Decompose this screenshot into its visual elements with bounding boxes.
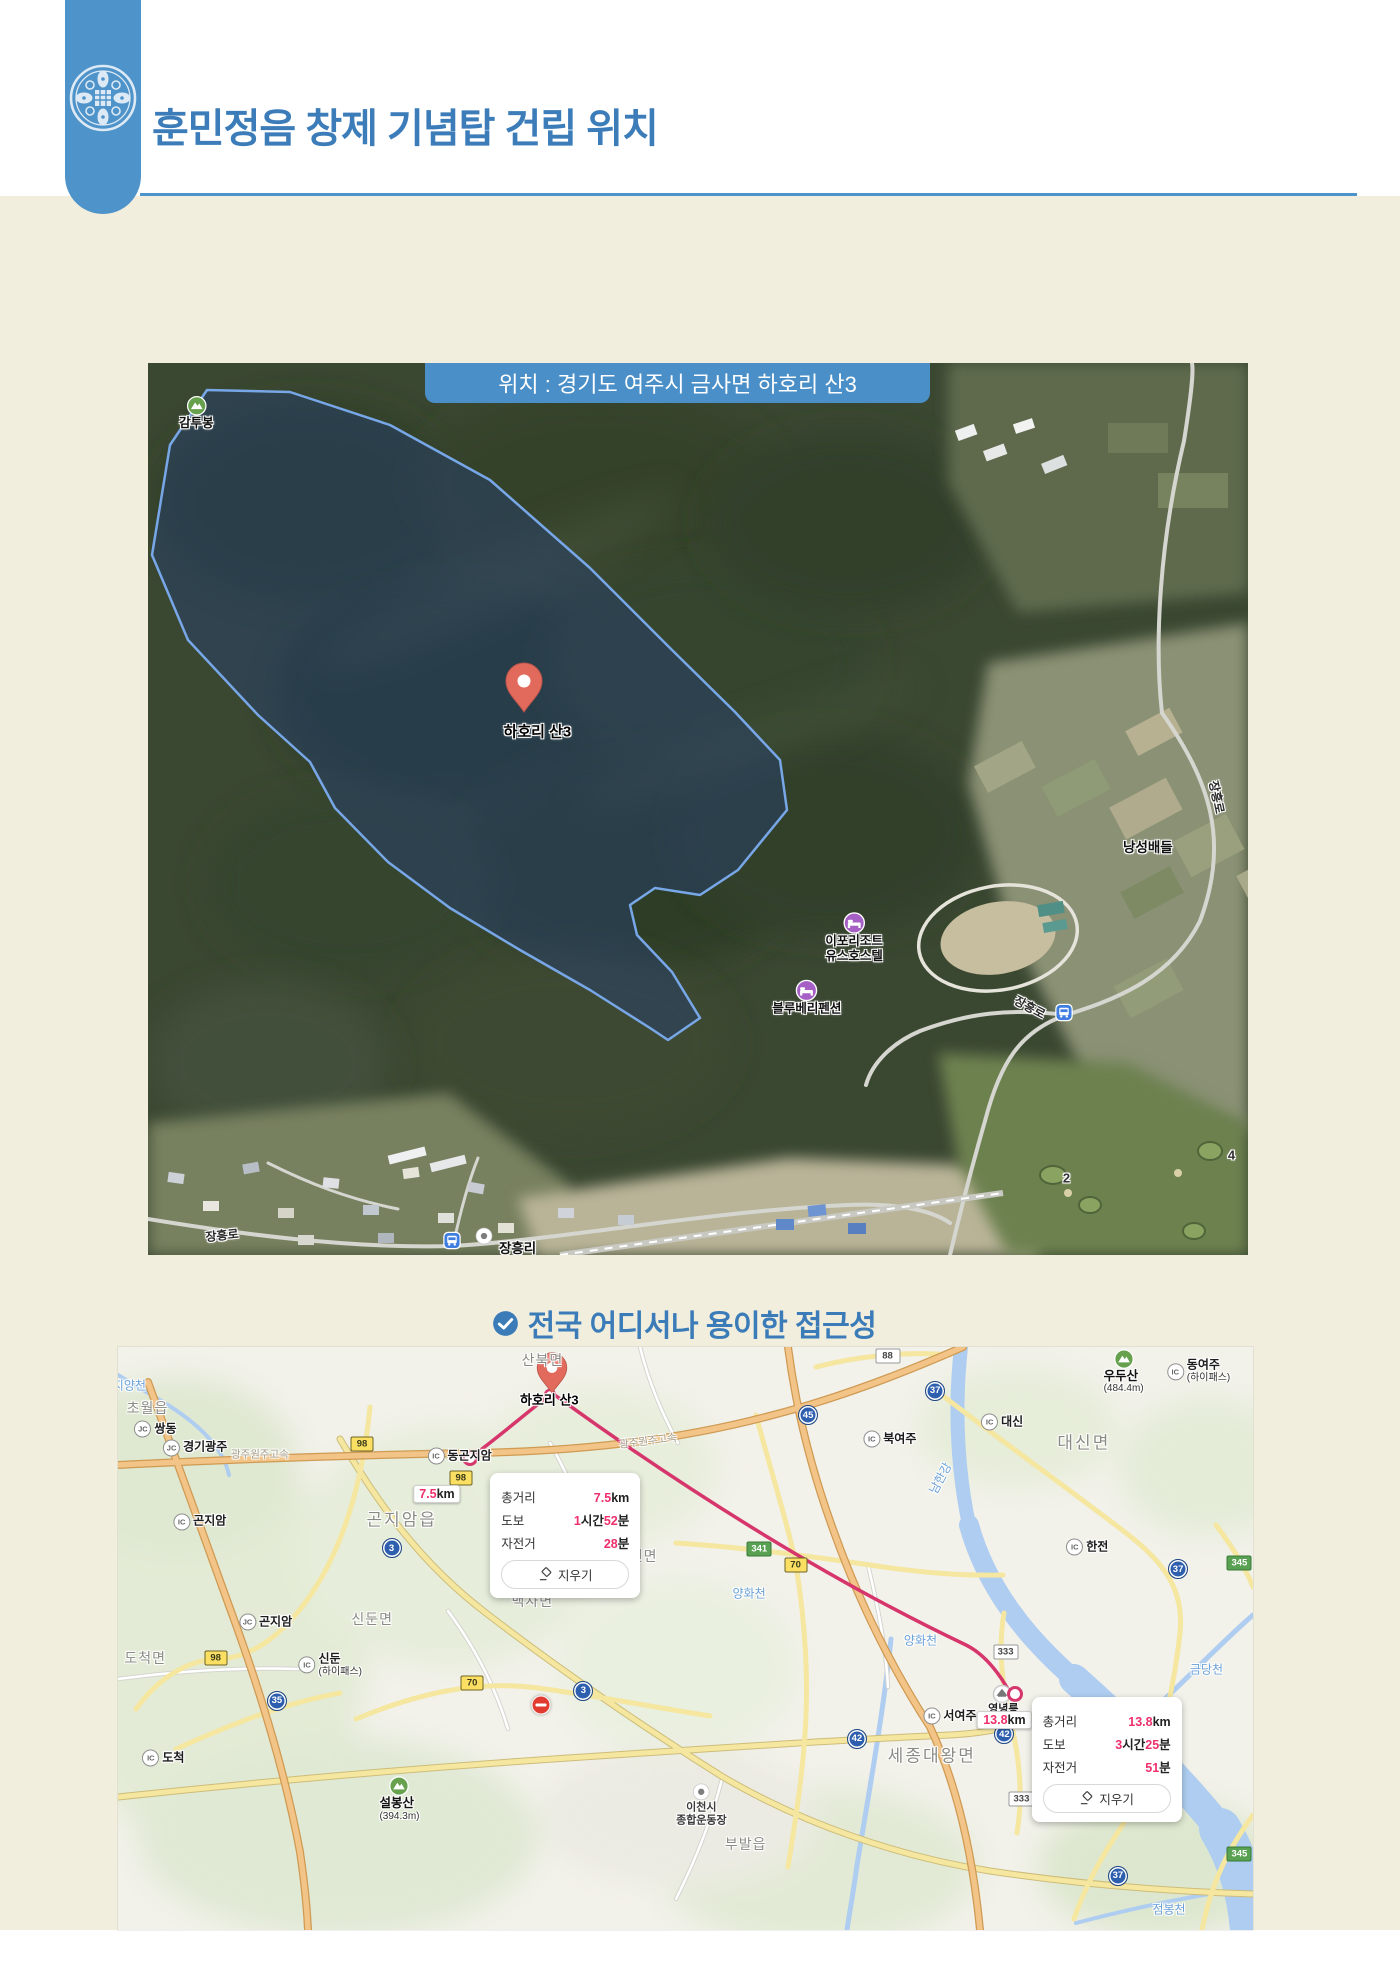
route-badge: 345: [1227, 1555, 1252, 1570]
bus-stop-icon: [1055, 1003, 1074, 1022]
section-heading-text: 전국 어디서나 용이한 접근성: [528, 1301, 877, 1345]
location-banner-text: 위치 : 경기도 여주시 금사면 하호리 산3: [498, 367, 857, 399]
bus-stop-icon: [1055, 1003, 1074, 1027]
route-badge: 35: [267, 1691, 287, 1711]
route-badge: 98: [351, 1436, 374, 1451]
mountain-icon: [1114, 1349, 1134, 1369]
clear-route-button[interactable]: 지우기: [1043, 1784, 1171, 1813]
map-label: 양화천: [732, 1585, 765, 1602]
area-nangseongbaedeul: 낭성배들: [1123, 836, 1173, 856]
route-badge: 3: [382, 1538, 402, 1558]
site-pin-label: 하호리 산3: [504, 721, 572, 742]
interchange-label: IC대신: [981, 1414, 1023, 1431]
route-map[interactable]: 산북면지양천초월읍JC쌍동JC경기광주광주원주고속IC동곤지암광주원주고속989…: [118, 1347, 1253, 1930]
ribbon-bookmark: [65, 0, 141, 214]
interchange-label: IC동곤지암: [428, 1448, 492, 1465]
map-label: 대신면: [1057, 1428, 1110, 1453]
peak-gamtubong: 감투봉: [179, 396, 214, 430]
route-badge: 98: [204, 1650, 227, 1665]
interchange-label: IC도척: [142, 1750, 184, 1767]
route-badge: 37: [1108, 1866, 1128, 1886]
route-badge: 37: [925, 1381, 945, 1401]
route-badge: 3: [573, 1681, 593, 1701]
map-label: 지양천: [118, 1377, 146, 1394]
route-badge: 341: [747, 1541, 772, 1556]
map-label: 양화천: [904, 1632, 937, 1649]
site-pin-label: 하호리 산3: [520, 1389, 579, 1408]
map-label: 신둔면: [351, 1609, 393, 1629]
golf-hole-2: 2: [1063, 1171, 1070, 1186]
road-jangheung-ro: 장흥로: [1205, 779, 1229, 815]
landmark-icon: [692, 1783, 711, 1802]
interchange-label: JC경기광주: [163, 1439, 227, 1456]
interchange-label: JC곤지암: [239, 1614, 292, 1631]
mountain-label: 우두산(484.4m): [1104, 1349, 1144, 1395]
route-badge: 70: [784, 1558, 807, 1573]
road-jangheung-ro: 장흥로: [1012, 992, 1049, 1023]
route-stat-row: 총거리13.8km: [1043, 1711, 1171, 1730]
no-entry-icon: [532, 1695, 551, 1714]
road-jangheung-ro: 장흥로: [204, 1225, 239, 1245]
route-badge: 88: [875, 1348, 900, 1363]
route-badge: 42: [847, 1729, 867, 1749]
distance-tag: 7.5km: [413, 1485, 460, 1503]
map-label: 초월읍: [127, 1398, 169, 1418]
check-icon: [492, 1310, 519, 1337]
page-title: 훈민정음 창제 기념탑 건립 위치: [152, 96, 658, 154]
interchange-label: IC북여주: [863, 1431, 916, 1448]
map-label: 도척면: [124, 1648, 166, 1668]
route-summary-box: 총거리7.5km도보1시간52분자전거28분지우기: [490, 1473, 640, 1598]
route-badge: 98: [449, 1471, 472, 1486]
interchange-label: IC신둔(하이패스): [299, 1653, 362, 1678]
map-label: 부발읍: [725, 1834, 767, 1854]
eraser-icon: [1079, 1791, 1094, 1806]
map-label: 광주원주고속: [231, 1446, 289, 1461]
landmark-icon: [474, 1227, 493, 1246]
map-label: 산북면: [522, 1350, 564, 1370]
map-label: 금당천: [1190, 1660, 1223, 1677]
interchange-label: IC서여주: [923, 1708, 976, 1725]
lodging-icon: [796, 980, 818, 1002]
route-summary-box: 총거리13.8km도보3시간25분자전거51분지우기: [1032, 1697, 1182, 1822]
poi-ipo-resort-youth-hostel: 이포리조트유스호스텔: [825, 912, 883, 964]
route-badge: 45: [798, 1405, 818, 1425]
eraser-icon: [538, 1567, 553, 1582]
route-stat-row: 자전거28분: [501, 1533, 629, 1552]
map-label: 세종대왕면: [888, 1741, 976, 1766]
clear-route-button[interactable]: 지우기: [501, 1560, 629, 1589]
satellite-map[interactable]: 위치 : 경기도 여주시 금사면 하호리 산3 감투봉하호리 산3이포리조트유스…: [148, 363, 1248, 1255]
golf-hole-4: 4: [1228, 1148, 1235, 1163]
interchange-label: IC동여주(하이패스): [1167, 1359, 1230, 1384]
interchange-label: JC쌍동: [134, 1421, 176, 1438]
bus-stop-icon: [442, 1231, 461, 1255]
distance-tag: 13.8km: [977, 1711, 1031, 1729]
header-divider: [140, 193, 1357, 196]
route-badge: 37: [1168, 1559, 1188, 1579]
poi-jangheungri-hall: 장흥리마을회관: [493, 1241, 543, 1255]
route-badge: 345: [1227, 1847, 1252, 1862]
route-badge: 70: [461, 1675, 484, 1690]
route-stat-row: 자전거51분: [1043, 1757, 1171, 1776]
interchange-label: IC한전: [1066, 1538, 1108, 1555]
route-stat-row: 도보1시간52분: [501, 1510, 629, 1529]
route-stat-row: 도보3시간25분: [1043, 1734, 1171, 1753]
bus-stop-icon: [442, 1231, 461, 1250]
map-label: 점봉천: [1152, 1901, 1185, 1918]
mountain-icon: [389, 1776, 409, 1796]
route-badge: 333: [993, 1644, 1018, 1659]
mountain-label: 설봉산(394.3m): [379, 1776, 419, 1822]
map-label: 광주원주고속: [618, 1430, 677, 1452]
poi-label: 이천시종합운동장: [676, 1783, 727, 1828]
section-heading: 전국 어디서나 용이한 접근성: [0, 1301, 1384, 1345]
mountain-icon: [186, 396, 206, 416]
poi-blueberry-pension: 블루베리펜션: [772, 980, 841, 1017]
landmark-icon: [474, 1227, 493, 1246]
document-page: 훈민정음 창제 기념탑 건립 위치: [0, 0, 1400, 1980]
map-label: 남한강: [924, 1460, 955, 1497]
lodging-icon: [843, 912, 865, 934]
location-banner: 위치 : 경기도 여주시 금사면 하호리 산3: [425, 363, 930, 403]
route-stat-row: 총거리7.5km: [501, 1487, 629, 1506]
route-badge: 333: [1009, 1791, 1034, 1806]
interchange-label: IC곤지암: [173, 1513, 226, 1530]
map-label: 곤지암읍: [366, 1505, 437, 1530]
hunminjeongeum-emblem-icon: [65, 58, 141, 138]
